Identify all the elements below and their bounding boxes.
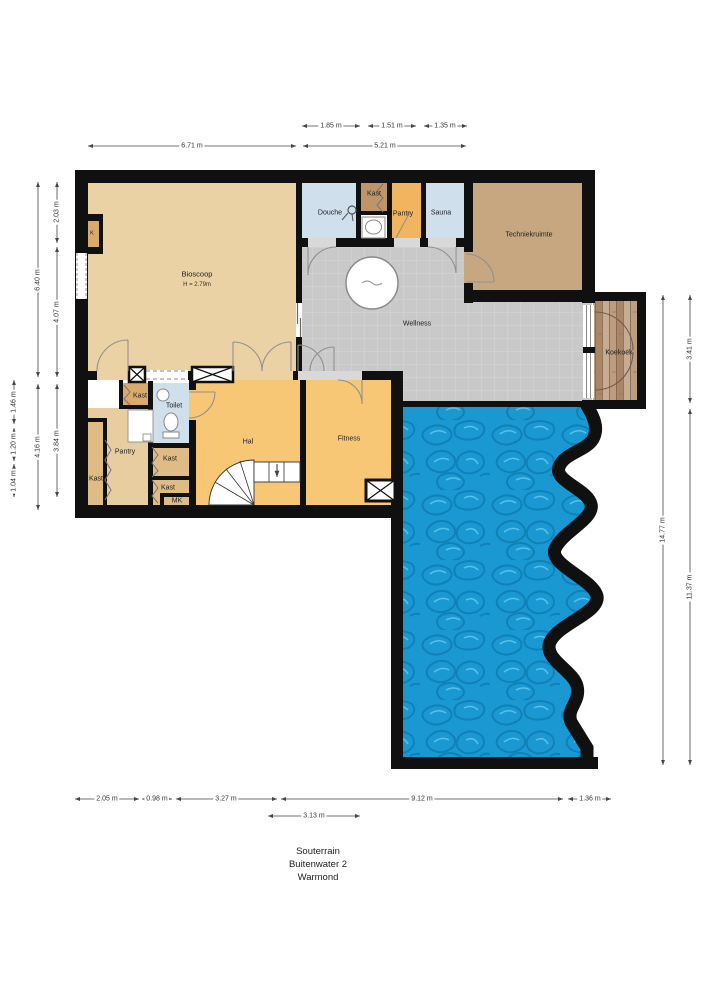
dim-left-inner-0: 2.03 m [54,199,61,224]
room-label-kast-a: Kast [133,393,147,400]
shaft-box-icon [192,367,233,382]
dim-left-mid-1: 4.16 m [35,434,42,459]
room-label-douche: Douche [318,210,342,217]
room-label-sauna: Sauna [431,210,451,217]
shaft-box-icon [366,480,395,501]
room-height-note-bioscoop: H = 2.79m [183,282,211,288]
toilet-tank-icon [163,432,179,438]
room-label-pantry-top: Pantry [393,211,413,218]
plan-title-line3: Warmond [289,871,347,884]
room-label-koekoek: Koekoek [605,350,632,357]
dim-left-inner-2: 3.84 m [54,428,61,453]
washbasin-icon [366,220,382,234]
dim-bottom1-1: 0.98 m [144,796,169,803]
plan-title-line2: Buitenwater 2 [289,858,347,871]
room-kast-left-area [87,420,105,505]
dim-top1-2: 1.35 m [432,123,457,130]
dim-top1-0: 1.85 m [318,123,343,130]
room-label-hal: Hal [243,439,254,446]
room-label-techniekruimte: Techniekruimte [505,232,552,239]
dim-bottom1-3: 9.12 m [409,796,434,803]
room-label-pantry-left: Pantry [115,449,135,456]
room-label-kast-mid: Kast [163,456,177,463]
toilet-sink-icon [157,389,169,401]
room-label-fitness: Fitness [338,436,361,443]
dim-bottom1-0: 2.05 m [94,796,119,803]
room-label-kast-left: Kast [89,476,103,483]
room-label-kast-top: Kast [367,191,381,198]
toilet-bowl-icon [164,413,178,431]
dim-right-outer-1: 11.37 m [687,573,694,602]
dim-bottom2-0: 3.13 m [301,813,326,820]
room-label-k: K [90,231,94,237]
shaft-box-icon [129,367,145,382]
dim-top2-0: 6.71 m [179,143,204,150]
floor-plan-page: Bioscoop H = 2.79m K Douche Kast Pantry … [0,0,707,1000]
dim-right-outer-0: 3.41 m [687,336,694,361]
dim-left-outer-0: 1.46 m [11,389,18,414]
dim-top1-1: 1.51 m [379,123,404,130]
plan-title: Souterrain Buitenwater 2 Warmond [289,845,347,884]
dim-left-outer-1: 1.20 m [11,431,18,456]
dim-right-inner-0: 14.77 m [660,515,667,544]
dim-bottom1-4: 1.36 m [577,796,602,803]
room-label-toilet: Toilet [166,403,182,410]
room-kast-top-area [358,182,389,213]
floor-plan-drawing [0,0,707,1000]
room-label-bioscoop: Bioscoop [182,270,213,278]
room-label-wellness: Wellness [403,321,431,328]
dim-bottom1-2: 3.27 m [213,796,238,803]
dim-left-mid-0: 6.40 m [35,267,42,292]
room-label-mk: MK [172,498,183,505]
room-label-kast-low: Kast [161,485,175,492]
dim-left-outer-2: 1.04 m [11,468,18,493]
plan-title-line1: Souterrain [289,845,347,858]
dim-top2-1: 5.21 m [372,143,397,150]
dim-left-inner-1: 4.07 m [54,299,61,324]
appliance-icon [128,410,153,442]
